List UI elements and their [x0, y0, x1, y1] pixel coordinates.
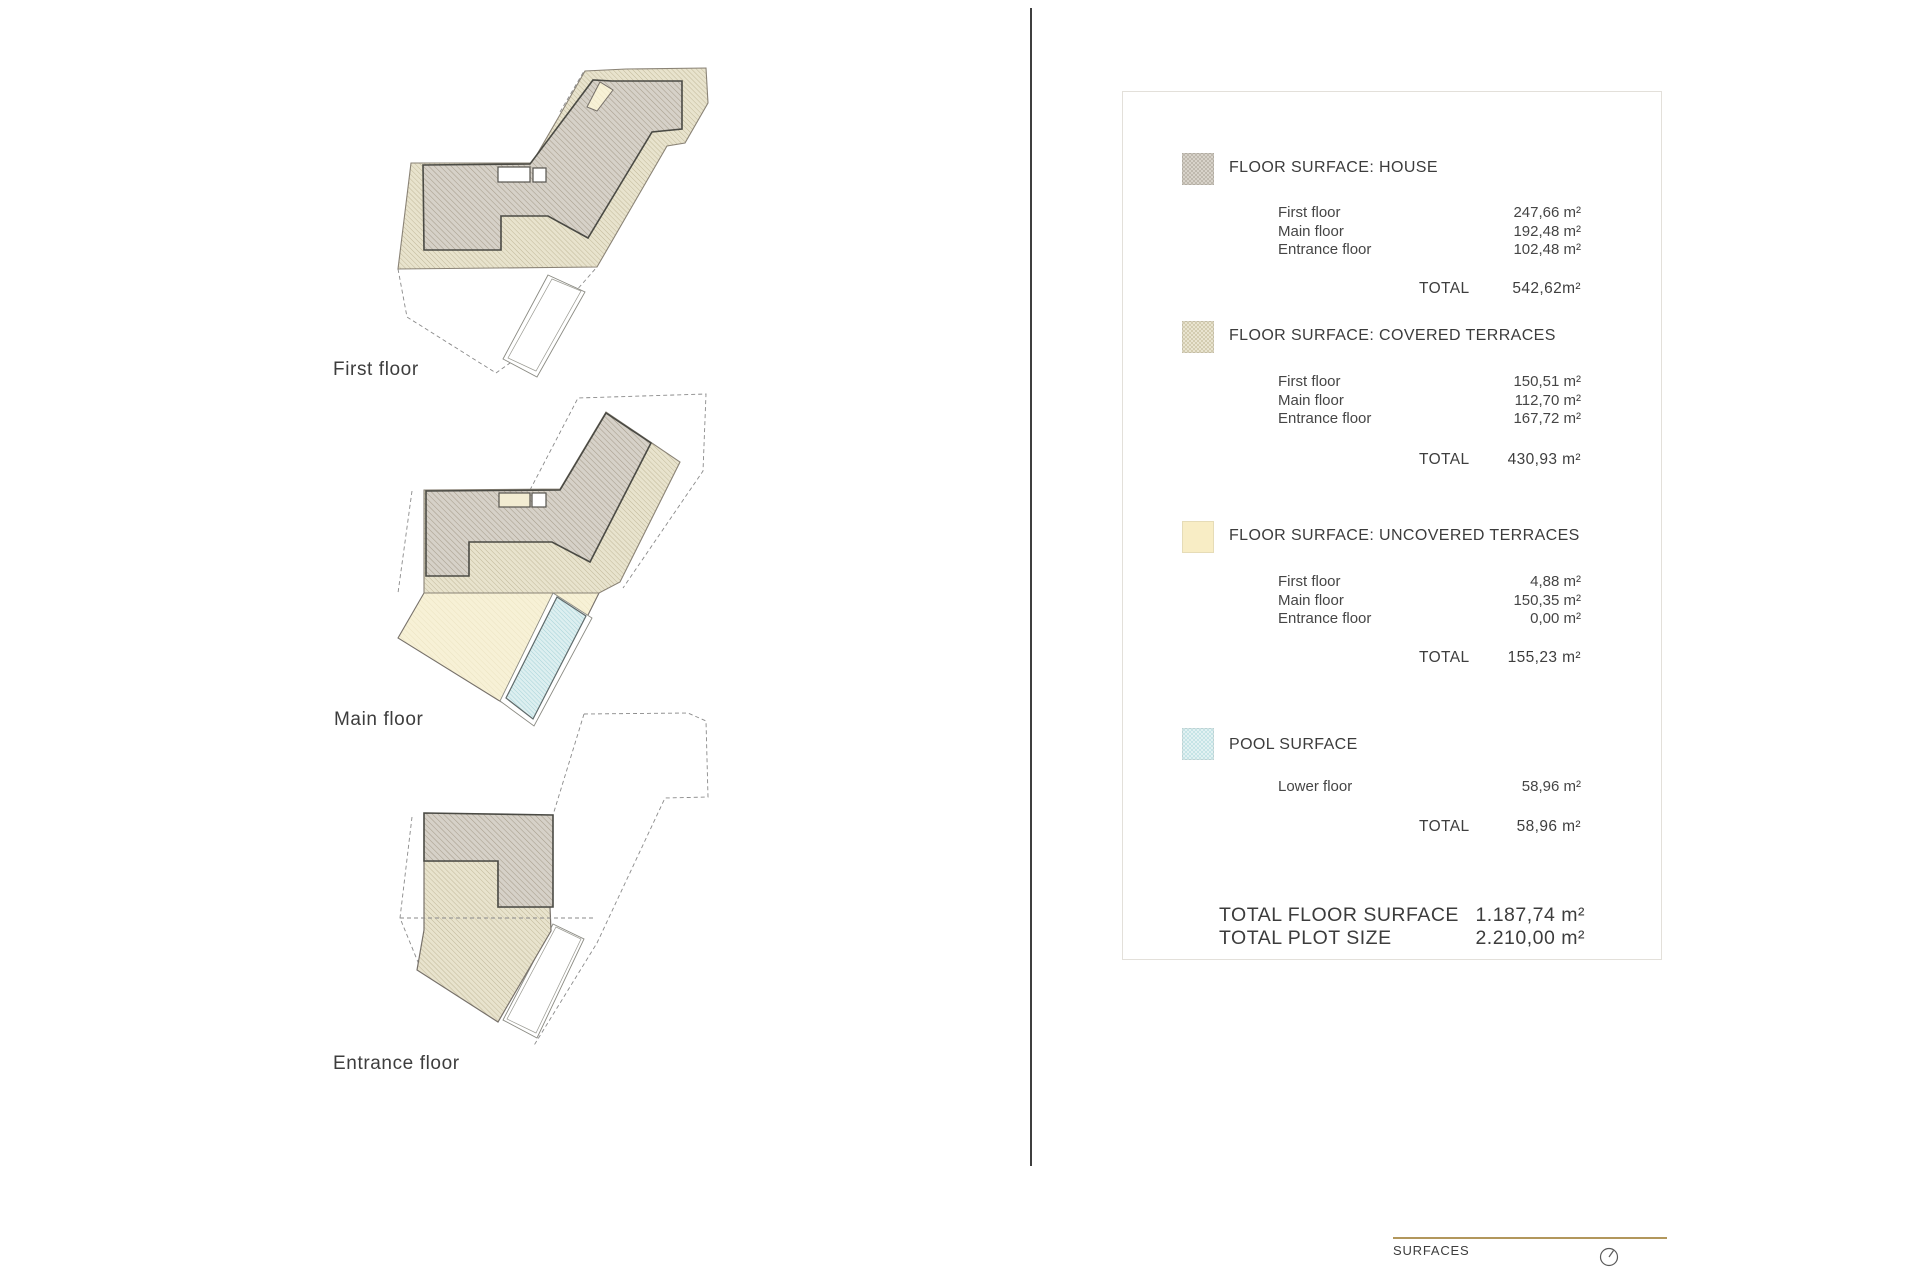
plot-boundary-dashed: [533, 713, 708, 1047]
skylight-rect: [498, 167, 530, 182]
table-row: Entrance floor 167,72 m²: [1278, 410, 1581, 429]
table-row: Main floor 192,48 m²: [1278, 223, 1581, 242]
row-value: 150,35 m²: [1513, 592, 1581, 611]
row-value: 58,96 m²: [1522, 778, 1581, 797]
row-label: Main floor: [1278, 223, 1344, 242]
total-row: TOTAL 542,62m²: [1419, 280, 1581, 298]
skylight-rect: [499, 493, 530, 507]
row-label: First floor: [1278, 373, 1341, 392]
row-value: 192,48 m²: [1513, 223, 1581, 242]
total-value: 542,62m²: [1512, 280, 1581, 298]
total-label: TOTAL: [1419, 451, 1470, 469]
section-house: FLOOR SURFACE: HOUSE First floor 247,66 …: [1123, 153, 1661, 321]
total-value: 430,93 m²: [1508, 451, 1581, 469]
plot-boundary-dashed-corner: [553, 714, 584, 815]
total-row: TOTAL 430,93 m²: [1419, 451, 1581, 469]
section-title: FLOOR SURFACE: HOUSE: [1229, 159, 1438, 177]
skylight-rect-small: [533, 168, 546, 182]
row-value: 112,70 m²: [1515, 392, 1581, 411]
row-value: 0,00 m²: [1530, 610, 1581, 629]
section-rows: First floor 150,51 m² Main floor 112,70 …: [1278, 373, 1581, 429]
table-row: First floor 4,88 m²: [1278, 573, 1581, 592]
plan-sheet: First floor Main floor Entrance floor FL…: [0, 0, 1920, 1280]
row-label: Entrance floor: [1278, 241, 1371, 260]
table-row: Lower floor 58,96 m²: [1278, 778, 1581, 797]
pool-swatch: [1182, 728, 1214, 760]
total-row: TOTAL 58,96 m²: [1419, 818, 1581, 836]
total-row: TOTAL 155,23 m²: [1419, 649, 1581, 667]
row-label: First floor: [1278, 573, 1341, 592]
grand-total-floor-surface: TOTAL FLOOR SURFACE 1.187,74 m²: [1219, 904, 1585, 927]
table-row: Entrance floor 102,48 m²: [1278, 241, 1581, 260]
entrance-floor-label: Entrance floor: [333, 1053, 460, 1075]
grand-total-plot-size: TOTAL PLOT SIZE 2.210,00 m²: [1219, 927, 1585, 950]
row-value: 150,51 m²: [1513, 373, 1581, 392]
row-value: 4,88 m²: [1530, 573, 1581, 592]
divider-line: [1030, 8, 1032, 1166]
row-label: Main floor: [1278, 392, 1344, 411]
section-uncovered-terraces: FLOOR SURFACE: UNCOVERED TERRACES First …: [1123, 521, 1661, 689]
section-title: POOL SURFACE: [1229, 736, 1358, 754]
house-swatch: [1182, 153, 1214, 185]
total-value: 58,96 m²: [1517, 818, 1581, 836]
row-label: First floor: [1278, 204, 1341, 223]
total-label: TOTAL: [1419, 649, 1470, 667]
section-covered-terraces: FLOOR SURFACE: COVERED TERRACES First fl…: [1123, 321, 1661, 491]
footer-title: SURFACES: [1393, 1243, 1469, 1258]
row-value: 167,72 m²: [1513, 410, 1581, 429]
row-label: Main floor: [1278, 592, 1344, 611]
table-row: Main floor 112,70 m²: [1278, 392, 1581, 411]
grand-total-value: 2.210,00 m²: [1475, 927, 1585, 950]
table-row: Main floor 150,35 m²: [1278, 592, 1581, 611]
row-value: 102,48 m²: [1513, 241, 1581, 260]
section-rows: Lower floor 58,96 m²: [1278, 778, 1581, 797]
row-label: Lower floor: [1278, 778, 1352, 797]
section-rows: First floor 247,66 m² Main floor 192,48 …: [1278, 204, 1581, 260]
clock-icon: [1598, 1246, 1620, 1268]
total-label: TOTAL: [1419, 818, 1470, 836]
main-floor-plan: [380, 390, 720, 740]
grand-total-label: TOTAL PLOT SIZE: [1219, 927, 1392, 950]
section-pool: POOL SURFACE Lower floor 58,96 m² TOTAL …: [1123, 728, 1661, 848]
plot-boundary-dashed-left: [400, 817, 420, 967]
entrance-floor-plan: [380, 700, 720, 1080]
covered-terraces-swatch: [1182, 321, 1214, 353]
row-label: Entrance floor: [1278, 610, 1371, 629]
footer-accent-line: [1393, 1237, 1667, 1239]
row-label: Entrance floor: [1278, 410, 1371, 429]
grand-total-label: TOTAL FLOOR SURFACE: [1219, 904, 1459, 927]
section-title: FLOOR SURFACE: UNCOVERED TERRACES: [1229, 527, 1580, 545]
surfaces-panel: FLOOR SURFACE: HOUSE First floor 247,66 …: [1122, 91, 1662, 960]
table-row: First floor 150,51 m²: [1278, 373, 1581, 392]
table-row: Entrance floor 0,00 m²: [1278, 610, 1581, 629]
section-rows: First floor 4,88 m² Main floor 150,35 m²…: [1278, 573, 1581, 629]
total-value: 155,23 m²: [1508, 649, 1581, 667]
first-floor-plan: [380, 50, 720, 390]
skylight-rect-small: [532, 493, 546, 507]
table-row: First floor 247,66 m²: [1278, 204, 1581, 223]
row-value: 247,66 m²: [1513, 204, 1581, 223]
first-floor-label: First floor: [333, 359, 419, 381]
total-label: TOTAL: [1419, 280, 1470, 298]
section-title: FLOOR SURFACE: COVERED TERRACES: [1229, 327, 1556, 345]
grand-total-value: 1.187,74 m²: [1475, 904, 1585, 927]
plot-boundary-dashed-left: [398, 491, 412, 593]
uncovered-terraces-swatch: [1182, 521, 1214, 553]
